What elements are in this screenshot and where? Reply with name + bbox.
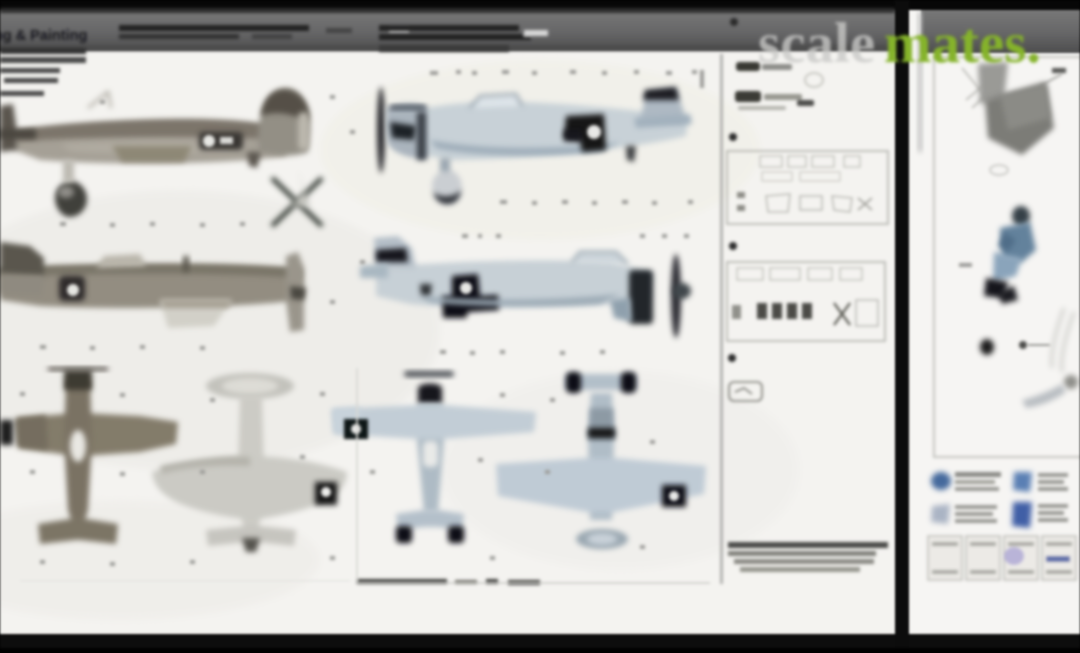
svg-text:Marking & Painting: Marking & Painting: [0, 28, 87, 44]
svg-text:scale: scale: [758, 12, 875, 75]
svg-text:mates.: mates.: [884, 12, 1041, 75]
